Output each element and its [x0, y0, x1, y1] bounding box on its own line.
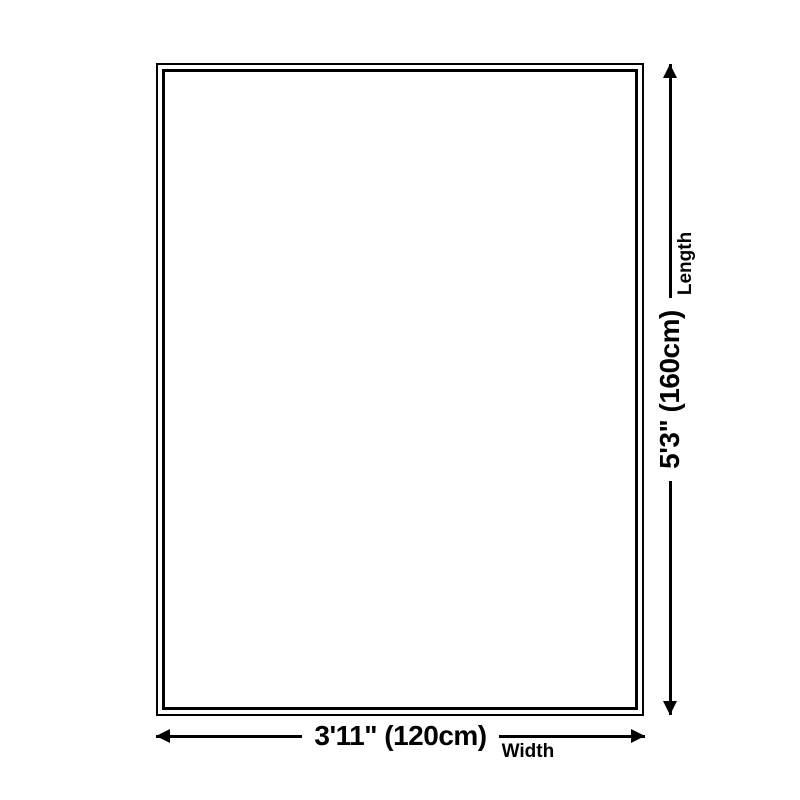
length-dimension: 5'3" (160cm) Length	[648, 64, 692, 715]
width-label: Width	[502, 742, 555, 761]
width-dimension-line-near	[156, 735, 302, 738]
length-dimension-line-near	[669, 481, 672, 715]
width-dimension-line-far: Width	[499, 735, 645, 738]
size-diagram: 3'11" (120cm) Width 5'3" (160cm) Length	[0, 0, 800, 800]
length-label: Length	[676, 232, 695, 295]
arrow-down-icon	[663, 701, 677, 715]
arrow-up-icon	[663, 64, 677, 78]
width-value: 3'11" (120cm)	[314, 720, 486, 752]
width-dimension: 3'11" (120cm) Width	[156, 714, 645, 758]
length-value: 5'3" (160cm)	[654, 310, 686, 469]
product-outline-outer	[156, 63, 644, 716]
length-dimension-line-far: Length	[669, 64, 672, 298]
arrow-left-icon	[156, 729, 170, 743]
product-outline-inner	[162, 69, 638, 710]
arrow-right-icon	[631, 729, 645, 743]
